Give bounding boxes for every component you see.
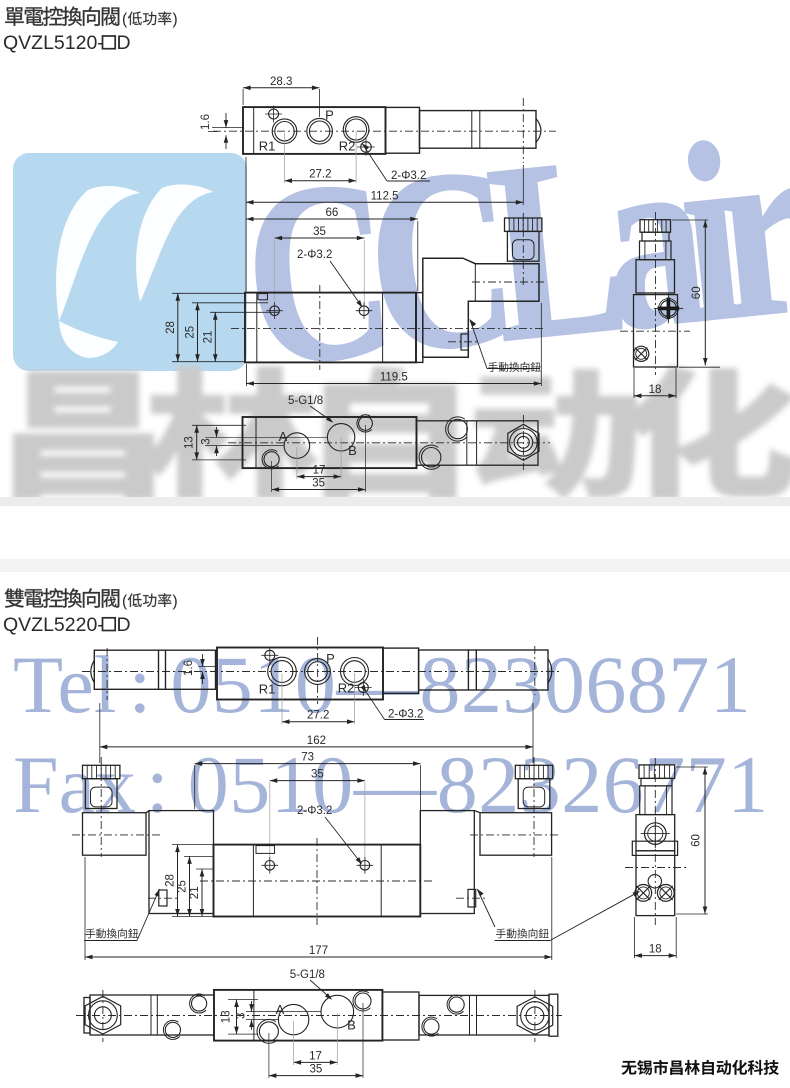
svg-text:5-G1/8: 5-G1/8 bbox=[288, 395, 323, 407]
svg-text:2-Φ3.2: 2-Φ3.2 bbox=[391, 170, 426, 182]
svg-text:112.5: 112.5 bbox=[371, 190, 399, 202]
svg-text:35: 35 bbox=[311, 769, 324, 781]
svg-text:25: 25 bbox=[177, 880, 189, 893]
svg-text:60: 60 bbox=[691, 834, 703, 847]
svg-text:28.3: 28.3 bbox=[270, 76, 292, 88]
svg-text:P: P bbox=[325, 108, 334, 123]
svg-text:2-Φ3.2: 2-Φ3.2 bbox=[388, 709, 423, 721]
svg-text:18: 18 bbox=[649, 384, 662, 396]
svg-text:QVZL5120-: QVZL5120- bbox=[3, 32, 104, 54]
svg-text:119.5: 119.5 bbox=[380, 372, 408, 384]
svg-text:A: A bbox=[276, 1002, 285, 1017]
svg-text:13: 13 bbox=[221, 1010, 233, 1023]
svg-text:D: D bbox=[117, 614, 131, 636]
svg-text:73: 73 bbox=[301, 752, 314, 764]
svg-text:25: 25 bbox=[185, 326, 197, 339]
svg-text:35: 35 bbox=[312, 478, 325, 490]
svg-text:A: A bbox=[279, 429, 288, 444]
svg-text:R1: R1 bbox=[259, 682, 276, 697]
svg-text:3: 3 bbox=[201, 438, 213, 444]
svg-text:21: 21 bbox=[189, 886, 201, 899]
svg-text:21: 21 bbox=[202, 331, 214, 344]
svg-text:35: 35 bbox=[310, 1064, 323, 1076]
svg-text:B: B bbox=[347, 1018, 356, 1033]
svg-text:18: 18 bbox=[649, 944, 662, 956]
svg-text:1.6: 1.6 bbox=[200, 114, 212, 130]
svg-text:3: 3 bbox=[236, 1013, 248, 1019]
svg-text:17: 17 bbox=[313, 465, 326, 477]
svg-text:R2: R2 bbox=[339, 139, 356, 154]
svg-text:28: 28 bbox=[165, 321, 177, 334]
svg-text:R1: R1 bbox=[259, 139, 276, 154]
svg-text:28: 28 bbox=[165, 874, 177, 887]
svg-text:QVZL5220-: QVZL5220- bbox=[3, 614, 104, 636]
svg-text:27.2: 27.2 bbox=[307, 710, 329, 722]
svg-text:B: B bbox=[348, 443, 357, 458]
svg-text:177: 177 bbox=[309, 945, 328, 957]
svg-text:P: P bbox=[326, 651, 335, 666]
svg-text:2-Φ3.2: 2-Φ3.2 bbox=[297, 249, 332, 261]
svg-text:(: ( bbox=[122, 11, 128, 28]
svg-text:162: 162 bbox=[307, 735, 326, 747]
svg-text:): ) bbox=[173, 11, 178, 28]
svg-text:Fax:0510––82326771: Fax:0510––82326771 bbox=[13, 739, 769, 830]
svg-text:2-Φ3.2: 2-Φ3.2 bbox=[297, 805, 332, 817]
svg-text:27.2: 27.2 bbox=[309, 169, 331, 181]
svg-text:D: D bbox=[117, 32, 131, 54]
svg-text:60: 60 bbox=[691, 286, 703, 299]
svg-text:66: 66 bbox=[326, 207, 339, 219]
svg-text:35: 35 bbox=[313, 226, 326, 238]
svg-text:5-G1/8: 5-G1/8 bbox=[290, 969, 325, 981]
svg-text:R2: R2 bbox=[338, 681, 355, 696]
svg-text:1.6: 1.6 bbox=[183, 660, 195, 676]
svg-text:): ) bbox=[173, 593, 178, 610]
svg-text:(: ( bbox=[122, 593, 128, 610]
svg-text:13: 13 bbox=[184, 436, 196, 449]
svg-text:17: 17 bbox=[309, 1050, 322, 1062]
